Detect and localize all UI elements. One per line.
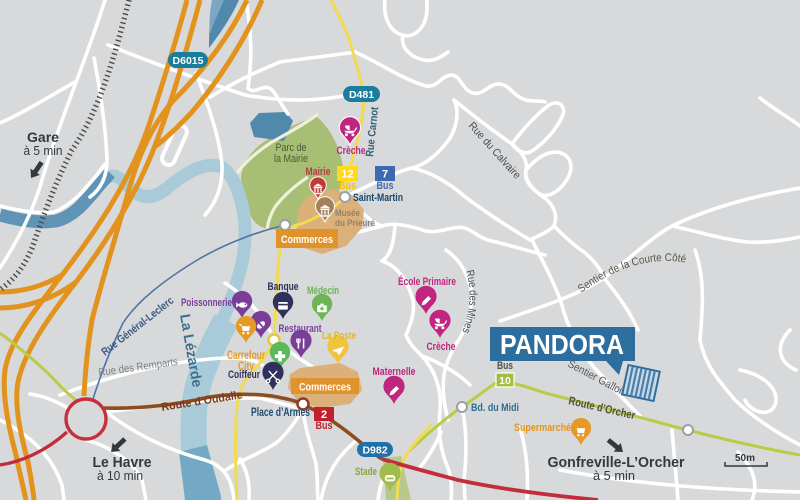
- svg-text:Banque: Banque: [268, 281, 299, 293]
- svg-text:à 5 min: à 5 min: [24, 144, 63, 158]
- svg-text:Restaurant: Restaurant: [279, 323, 322, 335]
- svg-text:Commerces: Commerces: [281, 234, 333, 246]
- svg-text:D982: D982: [362, 445, 387, 457]
- svg-text:Saint-Martin: Saint-Martin: [353, 192, 403, 204]
- svg-text:La Poste: La Poste: [322, 330, 356, 342]
- svg-text:7: 7: [382, 169, 388, 181]
- svg-text:Bus: Bus: [339, 180, 356, 192]
- svg-text:D481: D481: [349, 89, 374, 101]
- svg-text:Stade: Stade: [355, 466, 377, 478]
- svg-text:à 5 min: à 5 min: [593, 469, 635, 483]
- svg-text:D6015: D6015: [173, 55, 204, 67]
- svg-text:la Mairie: la Mairie: [274, 153, 308, 165]
- svg-text:12: 12: [341, 169, 353, 181]
- svg-text:50m: 50m: [735, 453, 755, 464]
- svg-text:Crèche: Crèche: [337, 145, 366, 157]
- svg-text:Commerces: Commerces: [299, 382, 351, 394]
- svg-text:Crèche: Crèche: [427, 341, 456, 353]
- svg-text:du Prieuré: du Prieuré: [335, 218, 375, 229]
- svg-text:PANDORA: PANDORA: [500, 329, 624, 360]
- svg-text:Mairie: Mairie: [306, 166, 331, 178]
- svg-text:Poissonnerie: Poissonnerie: [181, 297, 232, 309]
- svg-text:10: 10: [499, 375, 511, 387]
- svg-text:Bus: Bus: [316, 420, 333, 432]
- svg-text:à 10 min: à 10 min: [97, 469, 143, 483]
- svg-text:Médecin: Médecin: [307, 285, 339, 297]
- svg-text:Bd. du Midi: Bd. du Midi: [471, 402, 519, 414]
- svg-text:Place d’Armes: Place d’Armes: [251, 407, 310, 419]
- svg-text:Bus: Bus: [497, 360, 513, 372]
- svg-text:Coiffeur: Coiffeur: [228, 369, 261, 381]
- svg-text:Gare: Gare: [27, 130, 60, 145]
- svg-text:Bus: Bus: [377, 180, 394, 192]
- svg-text:École Primaire: École Primaire: [398, 275, 456, 288]
- svg-text:Supermarché: Supermarché: [514, 422, 571, 434]
- svg-text:Maternelle: Maternelle: [373, 366, 416, 378]
